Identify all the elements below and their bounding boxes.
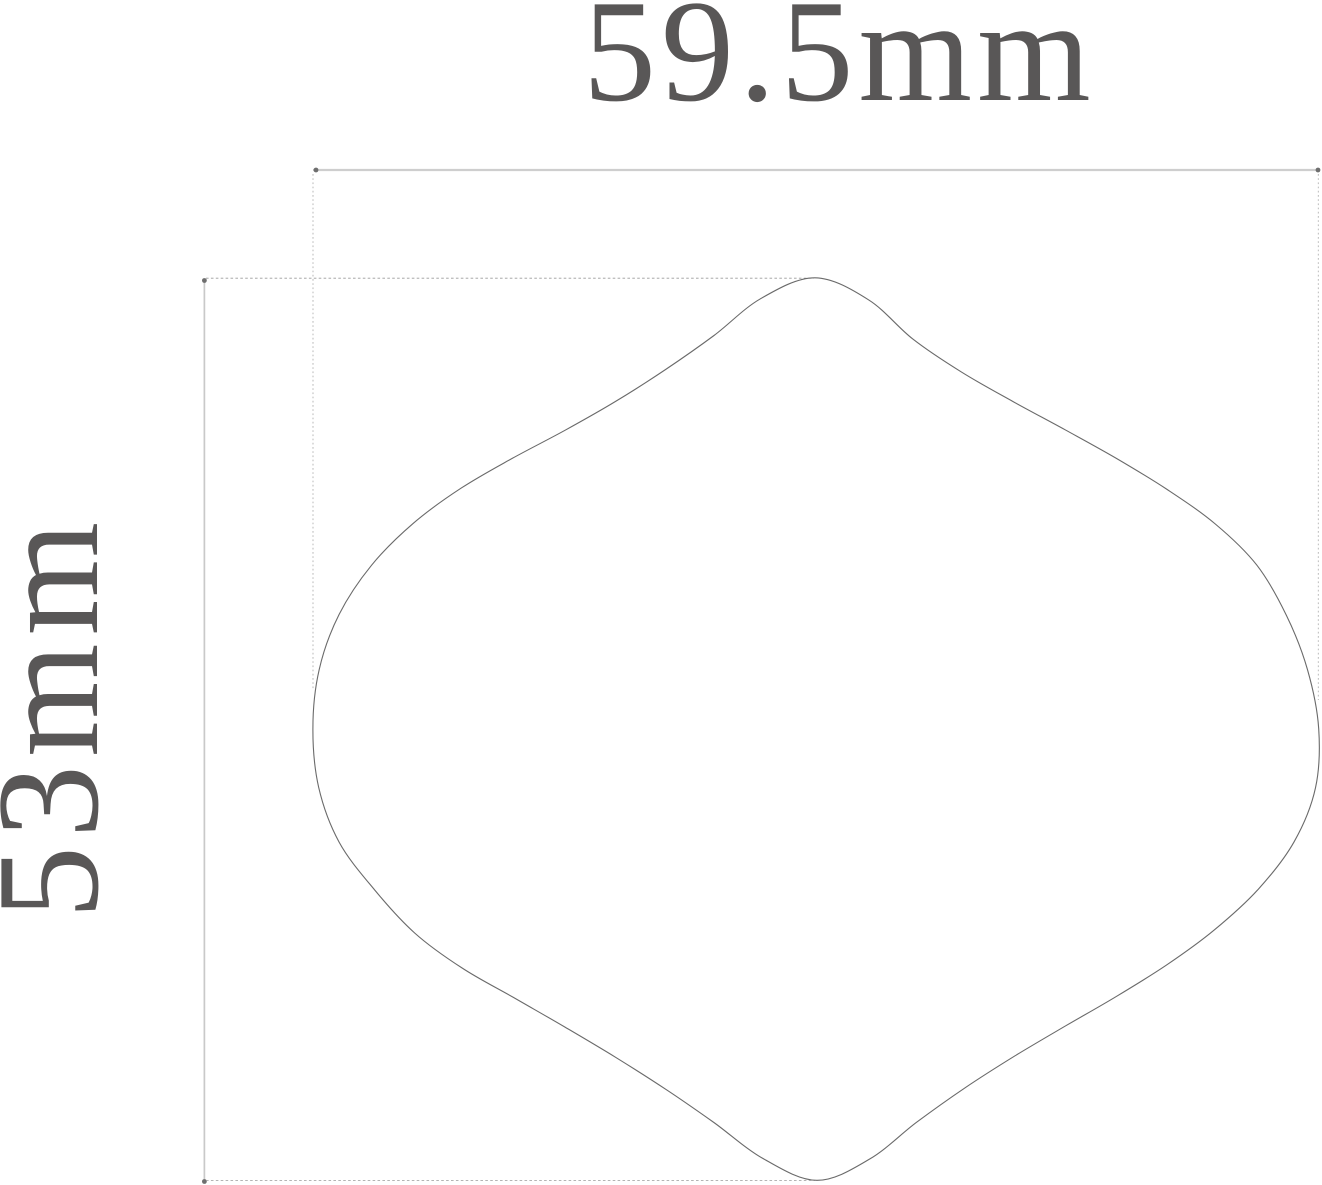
svg-text:59.5mm: 59.5mm [583,0,1096,132]
svg-text:53mm: 53mm [0,514,129,919]
